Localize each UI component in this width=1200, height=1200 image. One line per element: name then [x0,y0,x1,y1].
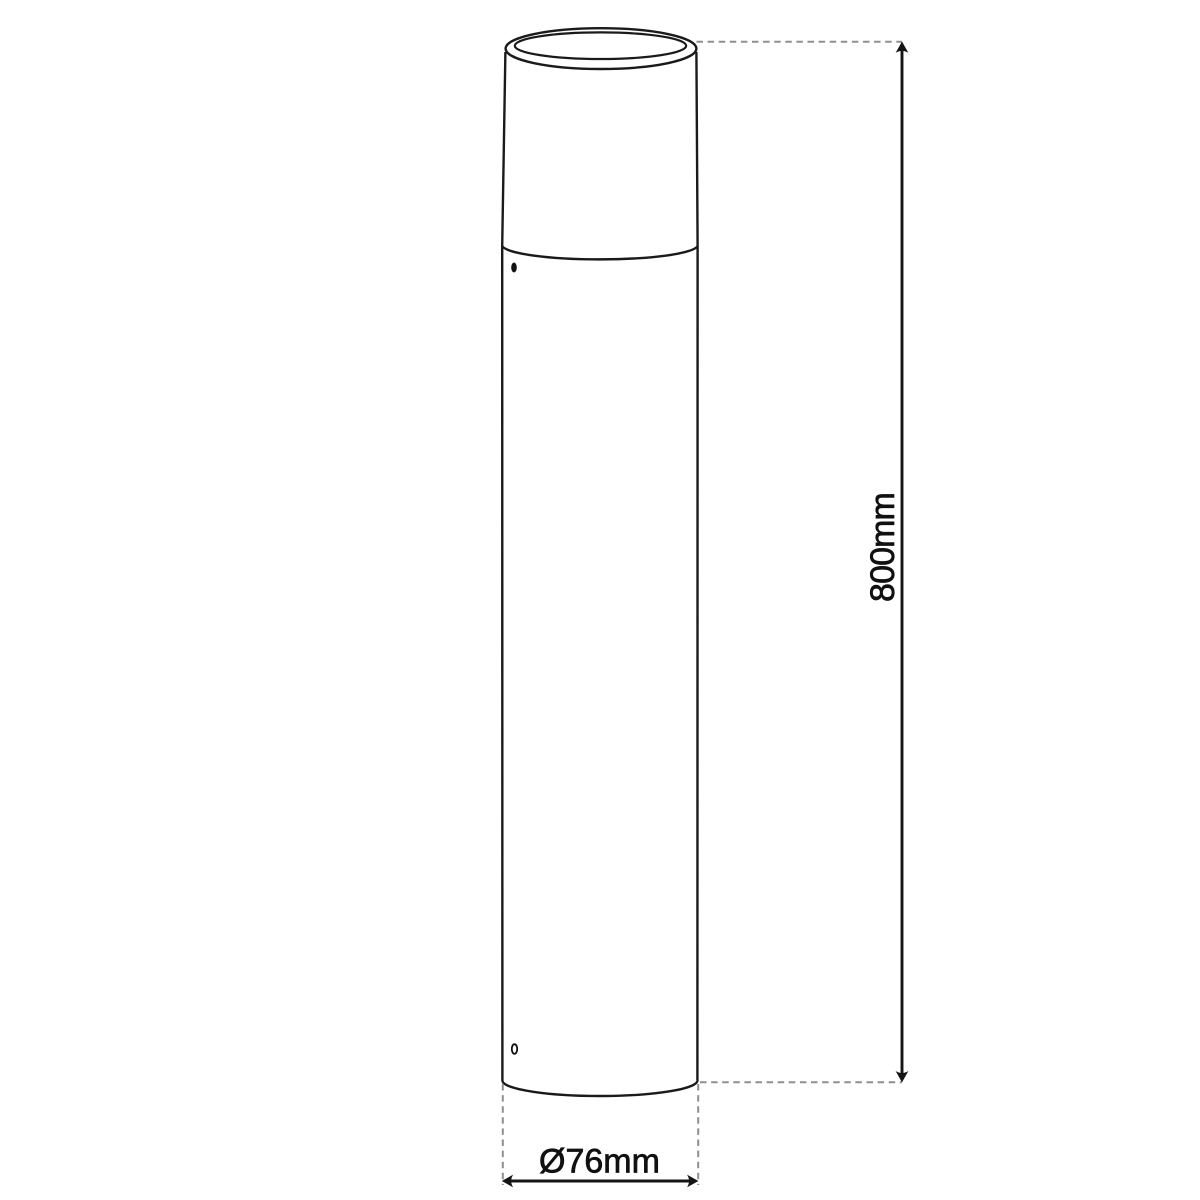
svg-text:800mm: 800mm [864,493,902,602]
svg-text:Ø76mm: Ø76mm [539,1143,660,1181]
